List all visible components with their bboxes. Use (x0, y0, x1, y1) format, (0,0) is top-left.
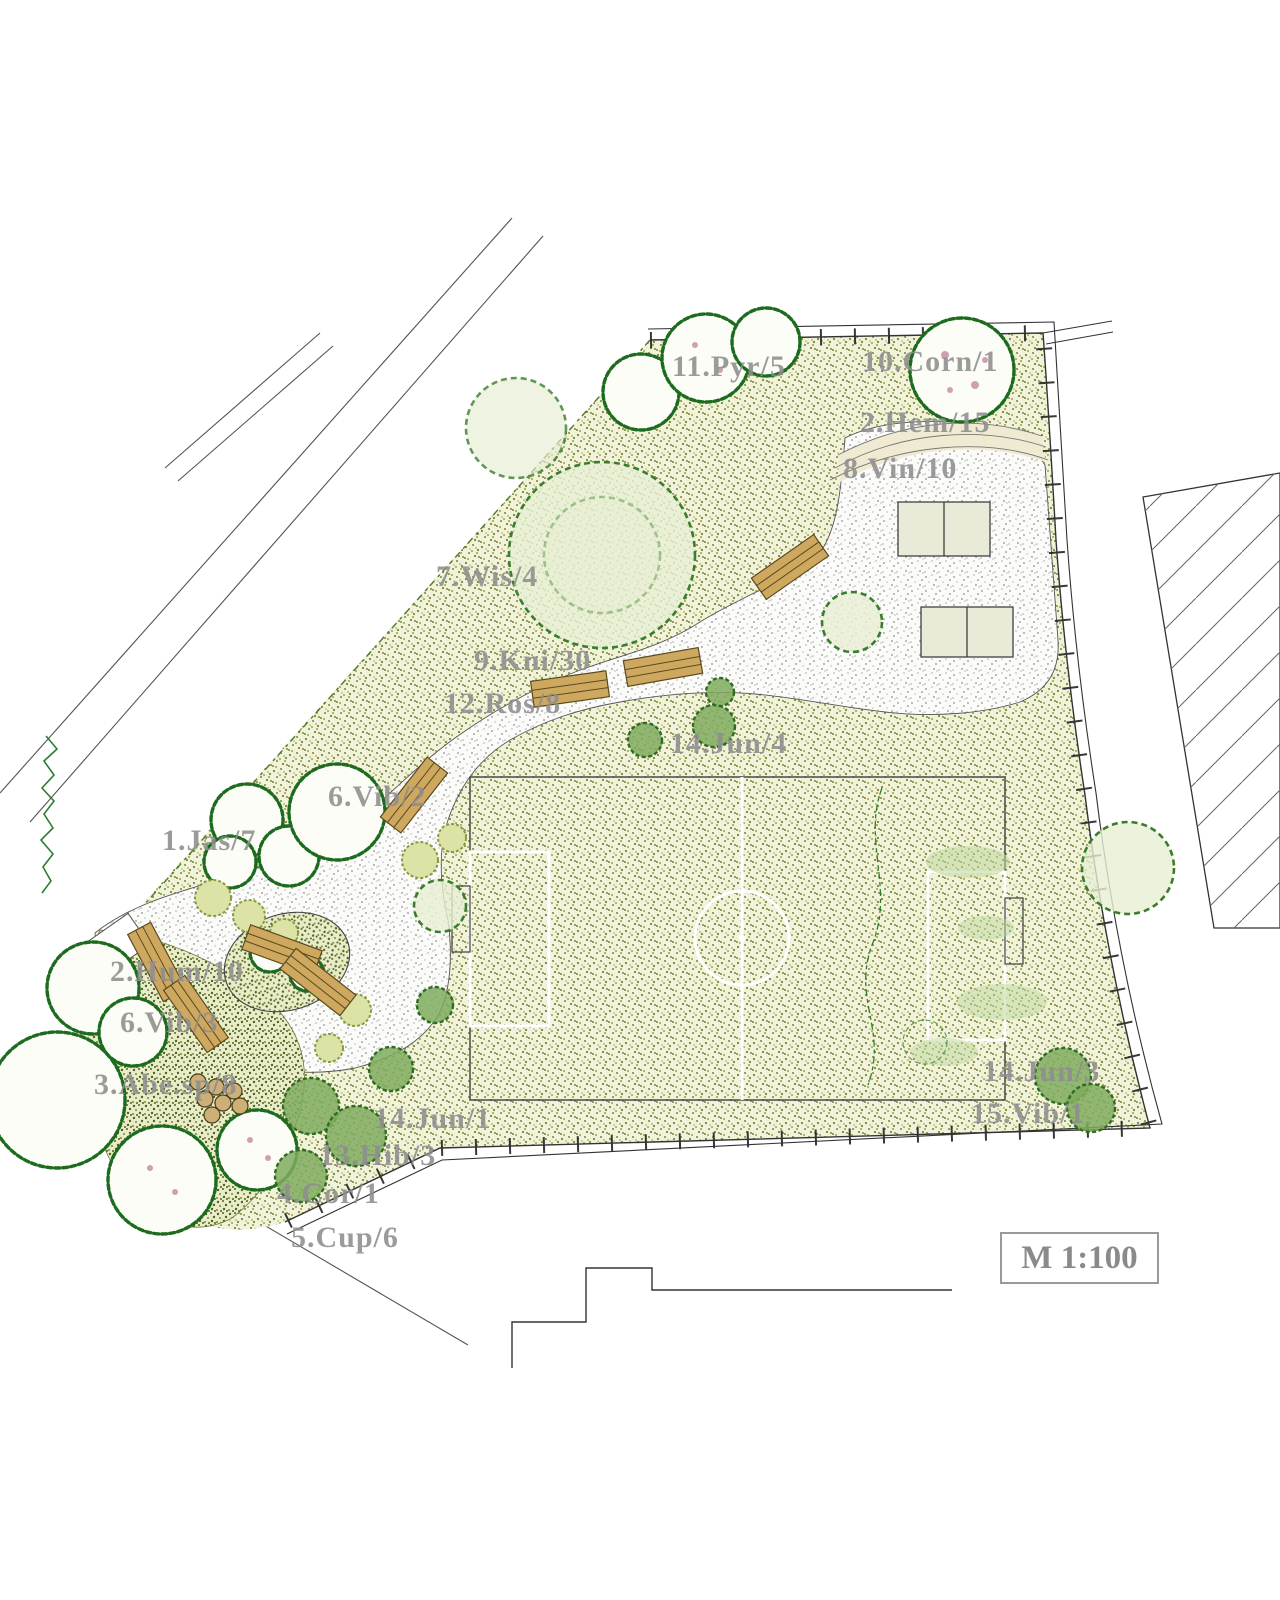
hedge-squiggle (41, 736, 57, 893)
steps-outline (512, 1268, 952, 1368)
landscape-plan: 11.Pyr/5 10.Corn/1 2.Hem/15 8.Vin/10 7.W… (0, 0, 1280, 1600)
scale-label: M 1:100 (1021, 1240, 1137, 1277)
site-plan-drawing (0, 0, 1280, 1600)
scale-box: M 1:100 (1000, 1232, 1159, 1284)
